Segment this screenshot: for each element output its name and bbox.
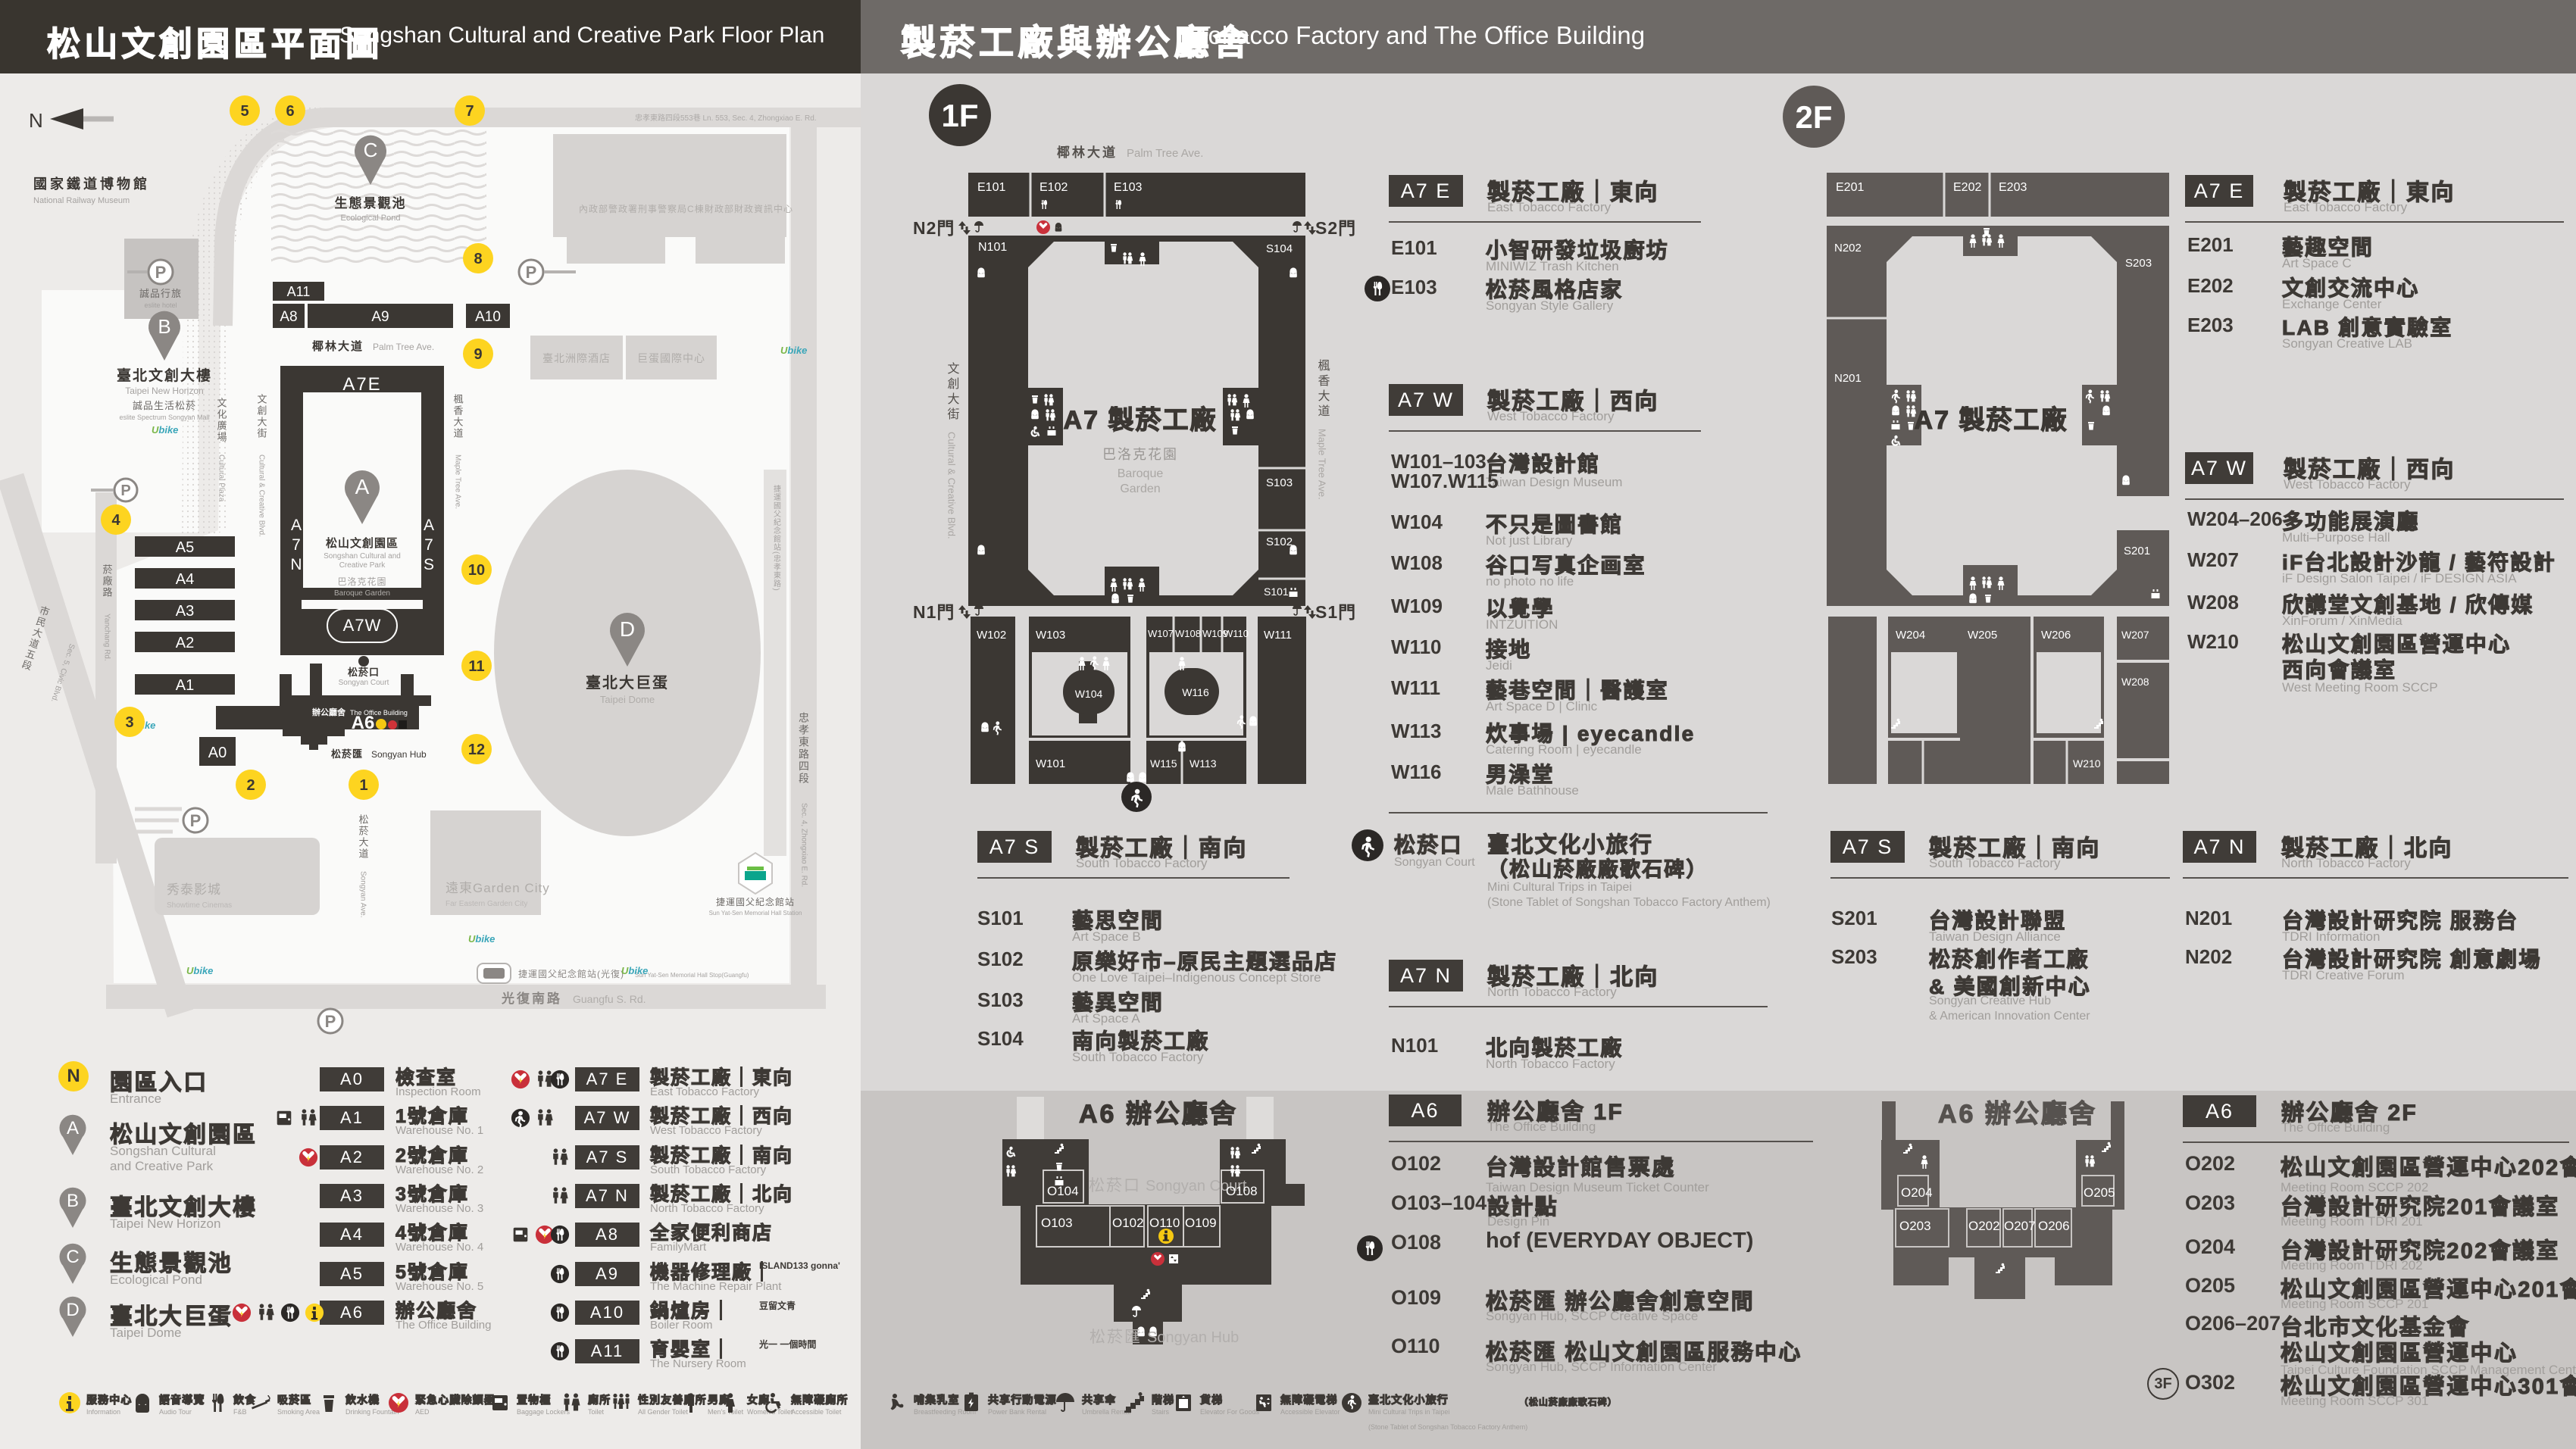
svg-text:A: A <box>355 475 370 498</box>
svg-text:B: B <box>67 1191 79 1211</box>
svg-text:臺北文創大樓: 臺北文創大樓 <box>117 367 212 384</box>
svg-text:A1: A1 <box>176 677 194 694</box>
svg-text:N201: N201 <box>1834 372 1862 385</box>
svg-text:O204: O204 <box>1901 1185 1933 1200</box>
svg-text:忠孝東路四段553巷 Ln. 553, Sec. 4, Zh: 忠孝東路四段553巷 Ln. 553, Sec. 4, Zhongxiao E.… <box>635 113 817 123</box>
svg-text:A7 製菸工廠: A7 製菸工廠 <box>1915 405 2068 435</box>
svg-text:S: S <box>424 556 434 573</box>
svg-text:巨蛋國際中心: 巨蛋國際中心 <box>637 352 705 364</box>
svg-text:N202: N202 <box>1834 242 1862 255</box>
svg-text:W111: W111 <box>1264 629 1292 642</box>
svg-text:文化廣場: 文化廣場 <box>216 398 227 443</box>
svg-text:Baroque: Baroque <box>1118 467 1164 480</box>
svg-text:A0: A0 <box>208 745 227 761</box>
svg-text:O104: O104 <box>1047 1184 1079 1198</box>
svg-text:W115: W115 <box>1150 757 1177 770</box>
svg-text:A10: A10 <box>475 309 501 325</box>
svg-text:N101: N101 <box>978 241 1007 254</box>
svg-text:O205: O205 <box>2084 1185 2115 1200</box>
svg-text:W113: W113 <box>1190 757 1217 770</box>
svg-text:7: 7 <box>292 536 301 554</box>
svg-text:Ubike: Ubike <box>621 965 648 976</box>
svg-text:O109: O109 <box>1185 1216 1217 1230</box>
svg-text:W207: W207 <box>2121 629 2149 641</box>
svg-text:A: A <box>67 1118 79 1138</box>
svg-text:Maple Tree Ave.: Maple Tree Ave. <box>1317 429 1328 500</box>
svg-text:Ubike: Ubike <box>468 933 495 945</box>
svg-text:A4: A4 <box>176 571 194 588</box>
svg-text:臺北大巨蛋: 臺北大巨蛋 <box>586 674 669 692</box>
svg-text:Palm Tree Ave.: Palm Tree Ave. <box>1127 147 1203 160</box>
svg-text:捷運國父紀念館站: 捷運國父紀念館站 <box>716 896 795 907</box>
svg-text:National Railway Museum: National Railway Museum <box>33 196 130 205</box>
svg-text:W107: W107 <box>1148 628 1174 639</box>
svg-text:S203: S203 <box>2125 257 2152 270</box>
svg-text:Garden: Garden <box>1120 482 1160 495</box>
svg-text:S104: S104 <box>1266 242 1293 255</box>
svg-text:5: 5 <box>240 103 249 120</box>
svg-text:S201: S201 <box>2124 545 2150 557</box>
svg-text:Taipei New Horizon: Taipei New Horizon <box>125 386 203 396</box>
svg-text:S102: S102 <box>1266 536 1293 548</box>
svg-text:O206: O206 <box>2038 1219 2070 1233</box>
svg-text:W104: W104 <box>1075 688 1103 700</box>
svg-text:2: 2 <box>246 777 255 794</box>
svg-text:O203: O203 <box>1899 1219 1931 1233</box>
svg-text:A: A <box>424 517 434 534</box>
svg-text:Ubike: Ubike <box>152 424 178 436</box>
svg-text:S2門: S2門 <box>1315 218 1356 238</box>
svg-text:E202: E202 <box>1953 181 1981 194</box>
svg-text:光復南路: 光復南路 <box>501 991 562 1006</box>
svg-text:P: P <box>155 263 167 282</box>
svg-text:巴洛克花園: 巴洛克花園 <box>1102 447 1178 462</box>
svg-text:D: D <box>620 617 635 641</box>
svg-text:秀泰影城: 秀泰影城 <box>167 882 221 897</box>
svg-text:松菸大道: 松菸大道 <box>358 814 369 860</box>
svg-text:Sec. 4, Zhongxiao E. Rd.: Sec. 4, Zhongxiao E. Rd. <box>800 803 808 887</box>
svg-text:誠品行旅: 誠品行旅 <box>139 288 182 299</box>
svg-text:內政部警政署刑事警察局C棟: 內政部警政署刑事警察局C棟 <box>579 203 705 214</box>
svg-text:O103: O103 <box>1041 1216 1073 1230</box>
svg-text:E203: E203 <box>1999 181 2027 194</box>
svg-text:市民大道五段: 市民大道五段 <box>19 604 51 673</box>
svg-text:7: 7 <box>424 536 433 554</box>
svg-text:捷運國父紀念館站(忠孝東路): 捷運國父紀念館站(忠孝東路) <box>772 484 781 592</box>
svg-text:O207: O207 <box>2004 1219 2036 1233</box>
svg-text:辦公廳舍: 辦公廳舍 <box>312 707 346 717</box>
svg-text:E201: E201 <box>1836 181 1864 194</box>
svg-text:eslite hotel: eslite hotel <box>144 301 177 309</box>
svg-text:Sun Yat-Sen Memorial Hall Stop: Sun Yat-Sen Memorial Hall Stop(Guangfu) <box>635 972 749 979</box>
svg-text:Baroque Garden: Baroque Garden <box>334 589 390 598</box>
svg-text:W102: W102 <box>977 629 1006 642</box>
svg-text:W101: W101 <box>1036 757 1065 770</box>
svg-text:P: P <box>325 1012 336 1031</box>
svg-text:2F: 2F <box>1795 99 1832 135</box>
svg-text:9: 9 <box>474 346 482 363</box>
svg-text:A6 辦公廳舍: A6 辦公廳舍 <box>1079 1099 1238 1129</box>
svg-text:N1門: N1門 <box>913 602 955 622</box>
svg-text:W206: W206 <box>2041 629 2071 642</box>
svg-text:文創大街: 文創大街 <box>256 394 267 439</box>
svg-text:松菸口: 松菸口 <box>348 667 380 678</box>
svg-text:Songshan Cultural and: Songshan Cultural and <box>324 552 401 561</box>
svg-text:A: A <box>291 517 302 534</box>
svg-text:N: N <box>290 556 302 573</box>
svg-text:Songyan Ave.: Songyan Ave. <box>359 871 367 918</box>
svg-text:E102: E102 <box>1039 181 1068 194</box>
svg-text:7: 7 <box>465 103 474 120</box>
svg-text:菸廠路: 菸廠路 <box>102 564 113 598</box>
svg-text:椰林大道: 椰林大道 <box>312 339 364 353</box>
svg-text:Showtime Cinemas: Showtime Cinemas <box>167 901 232 910</box>
svg-text:A7W: A7W <box>343 616 382 635</box>
svg-text:W204: W204 <box>1896 629 1925 642</box>
svg-text:Creative Park: Creative Park <box>339 561 386 570</box>
svg-text:W116: W116 <box>1182 686 1209 698</box>
svg-text:Far Eastern Garden City: Far Eastern Garden City <box>445 900 527 908</box>
svg-text:W205: W205 <box>1968 629 1997 642</box>
svg-text:A2: A2 <box>176 635 194 651</box>
svg-text:W208: W208 <box>2121 676 2149 688</box>
svg-text:楓香大道: 楓香大道 <box>452 394 464 439</box>
svg-text:Ubike: Ubike <box>780 345 807 356</box>
svg-text:椰林大道: 椰林大道 <box>1057 145 1118 160</box>
svg-text:P: P <box>120 482 130 499</box>
svg-text:C: C <box>364 139 378 161</box>
svg-text:松山文創園區: 松山文創園區 <box>326 536 399 550</box>
svg-text:S1門: S1門 <box>1315 602 1356 622</box>
svg-text:松菸匯: 松菸匯 <box>1089 1329 1142 1346</box>
svg-text:Taipei Dome: Taipei Dome <box>600 694 655 705</box>
svg-text:O202: O202 <box>1968 1219 2000 1233</box>
svg-text:4: 4 <box>111 512 120 529</box>
svg-text:文創大街: 文創大街 <box>946 362 960 423</box>
svg-text:A6 辦公廳舍: A6 辦公廳舍 <box>1938 1099 2097 1129</box>
svg-text:生態景觀池: 生態景觀池 <box>335 195 407 211</box>
svg-text:eslite Spectrum Songyan Mall: eslite Spectrum Songyan Mall <box>119 414 209 421</box>
svg-text:遠東Garden City: 遠東Garden City <box>445 881 550 895</box>
svg-text:臺北洲際酒店: 臺北洲際酒店 <box>542 352 611 364</box>
svg-text:B: B <box>158 315 170 338</box>
svg-text:松菸匯: 松菸匯 <box>331 748 363 760</box>
svg-text:A7E: A7E <box>342 374 381 395</box>
svg-text:1F: 1F <box>941 98 978 133</box>
svg-text:Songyan Hub: Songyan Hub <box>1147 1329 1239 1346</box>
svg-text:P: P <box>526 263 537 282</box>
svg-text:A8: A8 <box>280 309 297 325</box>
svg-text:11: 11 <box>468 658 484 675</box>
svg-text:E101: E101 <box>977 181 1005 194</box>
svg-text:N: N <box>29 109 43 132</box>
svg-text:3: 3 <box>125 714 133 731</box>
svg-text:A7 製菸工廠: A7 製菸工廠 <box>1064 405 1218 435</box>
svg-text:Maple Tree Ave.: Maple Tree Ave. <box>454 454 462 509</box>
svg-text:Ubike: Ubike <box>186 965 213 976</box>
svg-text:楓香大道: 楓香大道 <box>1316 359 1330 420</box>
svg-text:P: P <box>190 811 202 830</box>
svg-text:Sun Yat-Sen Memorial Hall Stat: Sun Yat-Sen Memorial Hall Station <box>709 910 802 917</box>
svg-text:W103: W103 <box>1036 629 1065 642</box>
svg-text:E103: E103 <box>1114 181 1142 194</box>
svg-text:Cultural & Creative Blvd.: Cultural & Creative Blvd. <box>258 454 266 537</box>
svg-text:12: 12 <box>468 742 485 758</box>
svg-text:A5: A5 <box>176 539 194 556</box>
svg-text:N2門: N2門 <box>913 218 955 238</box>
svg-text:S103: S103 <box>1266 476 1293 489</box>
svg-text:S101: S101 <box>1264 586 1289 598</box>
svg-text:Songyan Hub: Songyan Hub <box>371 749 427 760</box>
svg-text:國家鐵道博物館: 國家鐵道博物館 <box>33 176 150 192</box>
svg-text:8: 8 <box>474 251 482 267</box>
svg-text:A3: A3 <box>176 603 194 620</box>
svg-text:Cultural & Creative Blvd.: Cultural & Creative Blvd. <box>946 432 958 539</box>
svg-text:A6: A6 <box>352 713 375 733</box>
svg-text:Yanchang Rd.: Yanchang Rd. <box>103 614 111 661</box>
svg-text:Palm Tree Ave.: Palm Tree Ave. <box>373 342 434 352</box>
svg-text:10: 10 <box>468 562 485 579</box>
svg-text:A11: A11 <box>287 284 311 299</box>
svg-text:巴洛克花園: 巴洛克花園 <box>337 576 386 587</box>
svg-text:6: 6 <box>286 103 294 120</box>
svg-text:1: 1 <box>359 777 367 794</box>
svg-text:C: C <box>66 1247 79 1267</box>
svg-text:Guangfu S. Rd.: Guangfu S. Rd. <box>573 993 646 1005</box>
svg-text:O108: O108 <box>1226 1184 1258 1198</box>
svg-text:忠孝東路四段: 忠孝東路四段 <box>798 712 810 785</box>
svg-text:Ecological Pond: Ecological Pond <box>341 214 401 223</box>
svg-text:財政部財政資訊中心: 財政部財政資訊中心 <box>705 203 793 214</box>
svg-text:O110: O110 <box>1149 1216 1180 1230</box>
svg-text:松菸口: 松菸口 <box>1089 1177 1141 1194</box>
svg-text:W108: W108 <box>1175 628 1201 639</box>
svg-text:Cultural Plaza: Cultural Plaza <box>217 454 226 502</box>
svg-text:O102: O102 <box>1112 1216 1144 1230</box>
svg-text:D: D <box>66 1300 79 1320</box>
svg-text:W210: W210 <box>2073 757 2101 770</box>
svg-text:W110: W110 <box>1224 628 1249 639</box>
svg-text:捷運國父紀念館站(光復): 捷運國父紀念館站(光復) <box>518 968 624 979</box>
svg-text:Songyan Court: Songyan Court <box>339 679 389 687</box>
svg-text:誠品生活松菸: 誠品生活松菸 <box>133 400 196 411</box>
svg-text:A9: A9 <box>371 309 389 325</box>
